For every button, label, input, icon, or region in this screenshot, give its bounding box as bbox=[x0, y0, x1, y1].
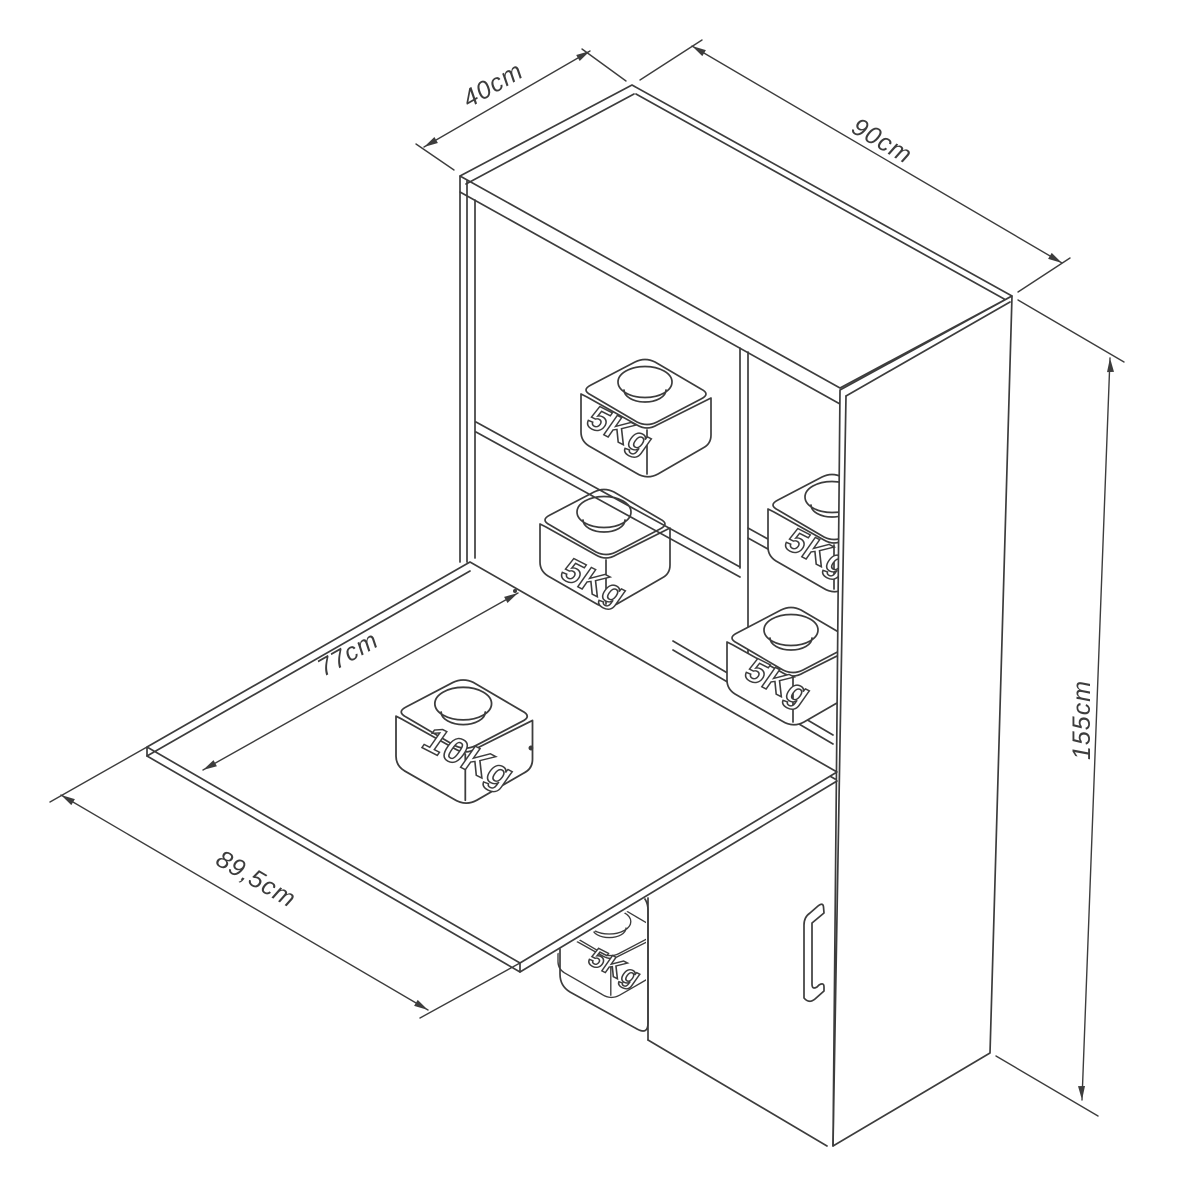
dim-overall-height-label: 155cm bbox=[1068, 680, 1096, 760]
print-dot bbox=[513, 589, 517, 593]
arrowhead-icon bbox=[576, 51, 590, 61]
extension-line bbox=[582, 49, 626, 81]
print-dot bbox=[529, 746, 534, 751]
extension-line bbox=[50, 747, 147, 802]
dim-top-width: 90cm bbox=[640, 40, 1070, 292]
dim-top-width-label: 90cm bbox=[847, 113, 917, 170]
technical-drawing-page: 5Kg 5Kg 5Kg 5Kg 5Kg bbox=[0, 0, 1200, 1200]
extension-line bbox=[1018, 300, 1124, 362]
dim-table-width-label: 89,5cm bbox=[211, 845, 301, 914]
dim-top-depth-label: 40cm bbox=[458, 57, 528, 114]
arrowhead-icon bbox=[1048, 253, 1062, 263]
dim-top-depth: 40cm bbox=[416, 49, 626, 170]
arrowhead-icon bbox=[692, 46, 706, 56]
arrowhead-icon bbox=[414, 1000, 428, 1010]
weight-block-mid-left: 5Kg bbox=[540, 490, 670, 614]
door-bottom-edge bbox=[648, 1040, 827, 1146]
door-handle bbox=[804, 904, 824, 1001]
extension-line bbox=[420, 963, 520, 1018]
dim-overall-height: 155cm bbox=[996, 300, 1124, 1116]
arrowhead-icon bbox=[1107, 358, 1114, 372]
dimension-line bbox=[692, 46, 1062, 263]
right-side-panel bbox=[833, 296, 1012, 1146]
cabinet-door bbox=[648, 898, 827, 1146]
arrowhead-icon bbox=[61, 795, 75, 805]
arrowhead-icon bbox=[424, 137, 438, 147]
extension-line bbox=[416, 144, 454, 170]
arrowhead-icon bbox=[1078, 1086, 1085, 1100]
right-panel-outer-face bbox=[833, 296, 1012, 1146]
weight-block-top: 5Kg bbox=[579, 360, 711, 477]
furniture-dimension-diagram: 5Kg 5Kg 5Kg 5Kg 5Kg bbox=[0, 0, 1200, 1200]
